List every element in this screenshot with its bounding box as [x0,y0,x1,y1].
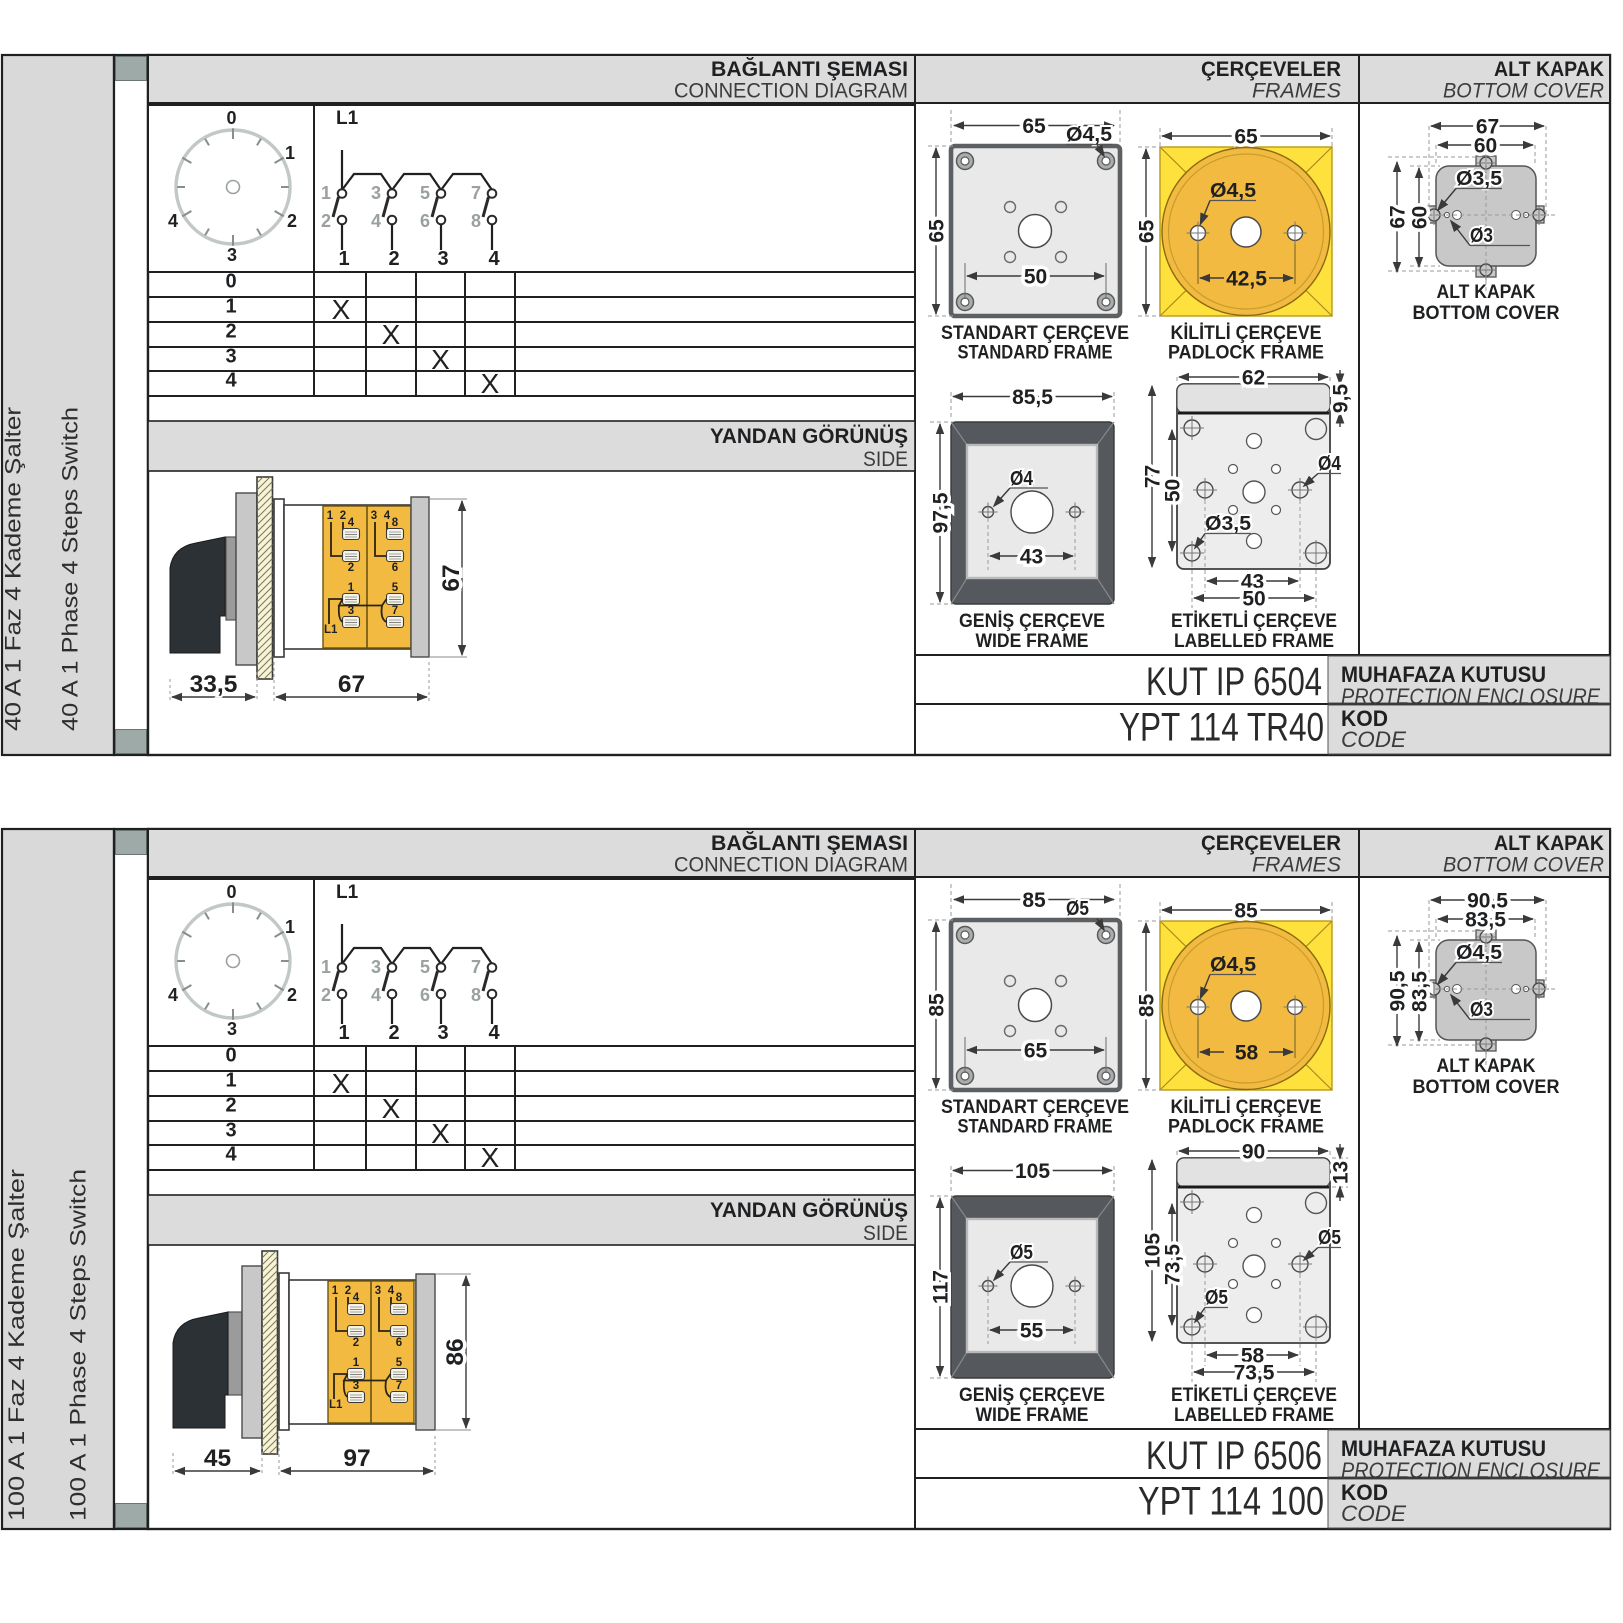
svg-text:X: X [431,1118,450,1149]
svg-text:CONNECTION DIAGRAM: CONNECTION DIAGRAM [674,854,908,877]
svg-text:1: 1 [338,248,349,270]
svg-text:85: 85 [925,993,948,1017]
svg-text:Ø5: Ø5 [1010,1242,1033,1264]
svg-text:55: 55 [1020,1319,1044,1342]
svg-text:3: 3 [348,605,354,617]
svg-text:ALT KAPAK: ALT KAPAK [1494,58,1604,81]
svg-text:40 A 1 Phase 4 Steps Switch: 40 A 1 Phase 4 Steps Switch [58,407,83,731]
svg-text:65: 65 [925,219,948,243]
svg-text:LABELLED FRAME: LABELLED FRAME [1174,1405,1334,1426]
svg-text:GENİŞ ÇERÇEVE: GENİŞ ÇERÇEVE [959,611,1105,632]
svg-text:2: 2 [321,211,331,231]
svg-text:62: 62 [1242,366,1265,389]
svg-text:YPT 114 TR40: YPT 114 TR40 [1119,706,1324,750]
svg-text:X: X [481,1142,500,1173]
svg-text:50: 50 [1024,265,1047,288]
svg-text:X: X [481,368,500,399]
svg-text:LABELLED FRAME: LABELLED FRAME [1174,631,1334,652]
svg-text:1: 1 [321,183,331,203]
svg-text:X: X [332,294,351,325]
svg-text:4: 4 [353,1292,360,1304]
svg-text:2: 2 [340,510,346,522]
svg-text:4: 4 [384,510,391,522]
svg-text:X: X [382,319,401,350]
svg-text:CODE: CODE [1341,727,1406,752]
svg-text:105: 105 [1015,1160,1050,1183]
svg-text:0: 0 [225,1045,236,1067]
svg-text:1: 1 [225,1070,236,1092]
svg-text:67: 67 [1386,205,1409,228]
svg-text:97,5: 97,5 [929,492,952,533]
svg-text:YANDAN GÖRÜNÜŞ: YANDAN GÖRÜNÜŞ [710,425,908,448]
svg-text:3: 3 [375,1285,381,1297]
svg-text:3: 3 [371,183,381,203]
svg-text:6: 6 [396,1337,402,1349]
svg-text:43: 43 [1020,545,1043,568]
svg-text:ÇERÇEVELER: ÇERÇEVELER [1201,832,1341,855]
svg-text:7: 7 [396,1380,402,1392]
svg-text:ALT KAPAK: ALT KAPAK [1437,282,1536,303]
svg-text:85,5: 85,5 [1012,386,1053,409]
svg-text:65: 65 [1135,220,1158,244]
svg-text:2: 2 [287,985,297,1005]
svg-text:73,5: 73,5 [1161,1244,1184,1285]
svg-text:FRAMES: FRAMES [1252,80,1341,103]
svg-text:3: 3 [227,1019,237,1039]
svg-text:WIDE FRAME: WIDE FRAME [976,631,1089,652]
svg-text:4: 4 [168,211,178,231]
svg-text:BOTTOM COVER: BOTTOM COVER [1413,1077,1560,1098]
svg-text:1: 1 [285,917,295,937]
svg-text:40 A 1 Faz 4 Kademe Şalter: 40 A 1 Faz 4 Kademe Şalter [1,407,26,731]
svg-text:Ø4,5: Ø4,5 [1066,124,1112,146]
svg-text:STANDART ÇERÇEVE: STANDART ÇERÇEVE [941,323,1129,344]
svg-text:58: 58 [1235,1042,1259,1065]
svg-text:Ø5: Ø5 [1318,1227,1341,1249]
svg-text:YPT 114 100: YPT 114 100 [1138,1480,1324,1524]
svg-text:STANDARD FRAME: STANDARD FRAME [958,343,1113,364]
svg-text:85: 85 [1022,889,1046,912]
svg-text:Ø5: Ø5 [1205,1287,1228,1309]
svg-text:50: 50 [1161,479,1184,502]
svg-text:L1: L1 [336,108,359,129]
svg-text:4: 4 [388,1285,395,1297]
svg-text:2: 2 [388,248,399,270]
svg-text:3: 3 [437,248,448,270]
svg-text:5: 5 [392,582,399,594]
svg-text:5: 5 [420,183,430,203]
svg-text:Ø4: Ø4 [1318,453,1342,475]
svg-text:9,5: 9,5 [1330,384,1353,414]
svg-text:100 A 1 Faz 4 Kademe Şalter: 100 A 1 Faz 4 Kademe Şalter [4,1169,29,1521]
svg-text:3: 3 [225,346,236,368]
svg-text:5: 5 [396,1357,403,1369]
svg-text:Ø5: Ø5 [1066,898,1089,920]
svg-text:X: X [332,1068,351,1099]
svg-text:PADLOCK FRAME: PADLOCK FRAME [1168,343,1324,364]
svg-text:1: 1 [225,296,236,318]
svg-text:7: 7 [471,183,481,203]
svg-text:ETİKETLİ ÇERÇEVE: ETİKETLİ ÇERÇEVE [1171,1385,1337,1406]
svg-text:ÇERÇEVELER: ÇERÇEVELER [1201,58,1341,81]
svg-text:Ø3: Ø3 [1470,999,1493,1021]
svg-text:ALT KAPAK: ALT KAPAK [1494,832,1604,855]
svg-text:2: 2 [321,985,331,1005]
svg-text:Ø3: Ø3 [1470,225,1493,247]
svg-text:85: 85 [1135,994,1158,1018]
svg-text:50: 50 [1242,587,1265,610]
svg-text:90: 90 [1242,1140,1265,1163]
svg-text:8: 8 [471,985,481,1005]
svg-text:90,5: 90,5 [1386,970,1409,1011]
svg-text:6: 6 [420,985,430,1005]
svg-text:YANDAN GÖRÜNÜŞ: YANDAN GÖRÜNÜŞ [710,1199,908,1222]
svg-text:117: 117 [929,1270,952,1304]
svg-text:L1: L1 [329,1399,343,1411]
svg-text:ALT KAPAK: ALT KAPAK [1437,1056,1536,1077]
svg-text:2: 2 [345,1285,351,1297]
svg-text:1: 1 [338,1022,349,1044]
svg-text:Ø4: Ø4 [1010,468,1034,490]
svg-text:GENİŞ ÇERÇEVE: GENİŞ ÇERÇEVE [959,1385,1105,1406]
svg-text:STANDARD FRAME: STANDARD FRAME [958,1117,1113,1138]
svg-text:0: 0 [226,108,236,128]
svg-text:7: 7 [392,605,398,617]
svg-text:X: X [382,1093,401,1124]
svg-text:4: 4 [168,985,178,1005]
svg-text:1: 1 [332,1285,339,1297]
svg-text:Ø4,5: Ø4,5 [1456,942,1502,964]
svg-text:BOTTOM COVER: BOTTOM COVER [1443,854,1604,877]
svg-text:BOTTOM COVER: BOTTOM COVER [1413,303,1560,324]
svg-text:4: 4 [488,248,500,270]
svg-text:SIDE: SIDE [863,1222,908,1245]
svg-text:CODE: CODE [1341,1501,1406,1526]
svg-text:3: 3 [353,1380,359,1392]
svg-text:83,5: 83,5 [1408,971,1431,1012]
svg-text:86: 86 [442,1338,469,1365]
svg-text:KUT IP 6506: KUT IP 6506 [1146,1434,1322,1478]
svg-text:L1: L1 [324,624,338,636]
svg-text:100 A 1 Phase 4 Steps Switch: 100 A 1 Phase 4 Steps Switch [66,1169,91,1521]
svg-text:4: 4 [488,1022,500,1044]
svg-text:83,5: 83,5 [1465,908,1506,931]
svg-text:Ø3,5: Ø3,5 [1205,513,1251,535]
svg-text:65: 65 [1024,1039,1048,1062]
svg-text:45: 45 [204,1445,231,1472]
svg-text:1: 1 [321,957,331,977]
svg-text:0: 0 [225,271,236,293]
svg-text:KUT IP 6504: KUT IP 6504 [1146,660,1322,704]
svg-text:L1: L1 [336,882,359,903]
svg-text:CONNECTION DIAGRAM: CONNECTION DIAGRAM [674,80,908,103]
svg-text:6: 6 [392,562,398,574]
svg-text:65: 65 [1234,125,1258,148]
svg-text:BOTTOM COVER: BOTTOM COVER [1443,80,1604,103]
svg-text:3: 3 [227,245,237,265]
svg-text:67: 67 [438,564,465,591]
svg-text:FRAMES: FRAMES [1252,854,1341,877]
svg-text:42,5: 42,5 [1226,268,1267,291]
svg-text:KİLİTLİ ÇERÇEVE: KİLİTLİ ÇERÇEVE [1171,1097,1322,1118]
svg-text:3: 3 [371,957,381,977]
svg-text:2: 2 [225,1095,236,1117]
svg-text:33,5: 33,5 [190,671,238,698]
svg-text:WIDE FRAME: WIDE FRAME [976,1405,1089,1426]
svg-text:4: 4 [225,1144,237,1166]
svg-text:60: 60 [1408,206,1431,229]
svg-text:8: 8 [471,211,481,231]
svg-text:73,5: 73,5 [1234,1361,1275,1384]
svg-text:STANDART ÇERÇEVE: STANDART ÇERÇEVE [941,1097,1129,1118]
svg-text:X: X [431,344,450,375]
svg-text:67: 67 [338,671,365,698]
svg-text:5: 5 [420,957,430,977]
svg-text:BAĞLANTI ŞEMASI: BAĞLANTI ŞEMASI [711,57,908,81]
svg-text:BAĞLANTI ŞEMASI: BAĞLANTI ŞEMASI [711,831,908,855]
svg-text:0: 0 [226,882,236,902]
svg-text:Ø4,5: Ø4,5 [1210,180,1256,202]
svg-text:65: 65 [1022,115,1046,138]
svg-text:4: 4 [371,211,381,231]
svg-text:13: 13 [1330,1161,1353,1184]
svg-text:1: 1 [353,1357,360,1369]
svg-text:3: 3 [225,1120,236,1142]
svg-text:KİLİTLİ ÇERÇEVE: KİLİTLİ ÇERÇEVE [1171,323,1322,344]
svg-text:Ø4,5: Ø4,5 [1210,954,1256,976]
svg-text:7: 7 [471,957,481,977]
svg-text:60: 60 [1474,134,1497,157]
svg-text:1: 1 [327,510,334,522]
svg-text:PADLOCK FRAME: PADLOCK FRAME [1168,1117,1324,1138]
svg-text:SIDE: SIDE [863,448,908,471]
svg-text:1: 1 [348,582,355,594]
svg-text:1: 1 [285,143,295,163]
svg-text:Ø3,5: Ø3,5 [1456,168,1502,190]
svg-text:2: 2 [388,1022,399,1044]
svg-text:6: 6 [420,211,430,231]
svg-text:4: 4 [225,370,237,392]
svg-text:85: 85 [1234,899,1258,922]
svg-text:2: 2 [353,1337,359,1349]
svg-text:3: 3 [437,1022,448,1044]
svg-text:8: 8 [392,517,399,529]
svg-text:ETİKETLİ ÇERÇEVE: ETİKETLİ ÇERÇEVE [1171,611,1337,632]
svg-text:8: 8 [396,1292,403,1304]
svg-text:4: 4 [348,517,355,529]
svg-text:97: 97 [343,1445,370,1472]
svg-text:4: 4 [371,985,381,1005]
svg-text:2: 2 [348,562,354,574]
svg-text:2: 2 [287,211,297,231]
svg-text:3: 3 [371,510,377,522]
svg-text:2: 2 [225,321,236,343]
